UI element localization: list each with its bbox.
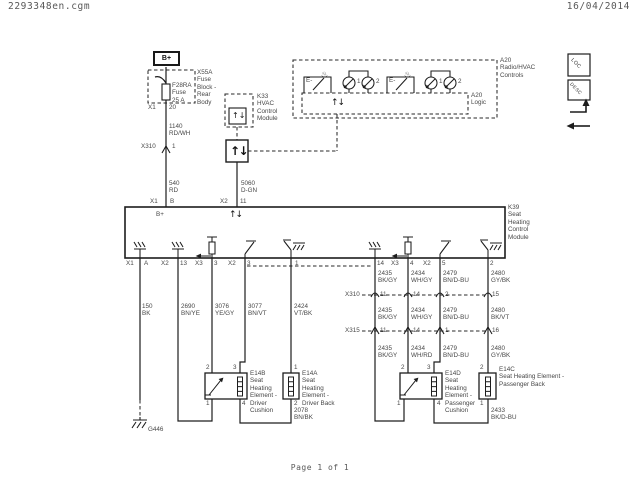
sensor-feed-resistor-symbol [397,237,413,258]
e14b-label: E14B Seat Heating Element - Driver Cushi… [250,370,277,415]
a20-logic-label: A20 Logic [471,92,486,107]
pin-label: 1 [206,400,210,407]
wire-label: 2480 GY/BK [491,345,510,360]
connector-label: X310 [345,291,360,298]
pin-label: 14 [413,291,420,298]
pin-label: 15 [492,291,499,298]
serial-data-icon: ↑↓ [331,99,344,108]
ground-label: G446 [148,426,163,433]
thermistor-symbol [205,380,221,395]
fuse-symbol [162,84,170,100]
pin-label: X1 [126,260,134,267]
pin-label: A [144,260,148,267]
switch-to-ground-symbol [480,240,502,258]
connector-label: X310 [141,143,156,150]
module-bplus-label: B+ [156,211,164,218]
wire-2690 [178,258,212,421]
pin-label: 1 [294,364,298,371]
pin-label: 2 [401,364,405,371]
serial-data-icon: ↑↓ [232,112,245,120]
pin-label: 3 [214,260,218,267]
led-legs [349,89,450,93]
pin-label: 3 [233,364,237,371]
module-internal-symbols [134,237,502,258]
pin-label: 1 [397,400,401,407]
wire-label: 150 BK [142,303,153,318]
ground-symbol [172,242,184,258]
wire-label: 2435 BK/GY [378,307,397,322]
serial-data-icon: ↑↓ [229,211,242,220]
ground-symbol [134,242,146,258]
wire-label: 2078 BN/BK [294,407,313,422]
pin-label: 2 [445,291,449,298]
k39-label: K39 Seat Heating Control Module [508,204,530,241]
ground-symbol [369,242,381,258]
k39-module-box [125,207,505,258]
pin-label: X2 [228,260,236,267]
pin-label: X3 [195,260,203,267]
fuse-terminal-hook [155,77,166,83]
diagram-linework [0,0,640,480]
pin-label: 3 [247,260,251,267]
k33-label: K33 HVAC Control Module [257,93,278,123]
pin-label: 1 [172,143,176,150]
pin-label: X2 [161,260,169,267]
e14a-label: E14A Seat Heating Element - Driver Back [302,370,335,407]
led-number: 1 [439,78,443,85]
switch-to-ground-symbol [283,240,305,258]
heated-seat-icon: ♨ [404,71,411,79]
pin-label: 20 [169,104,176,111]
pin-label: 16 [492,327,499,334]
pin-label: 2 [490,260,494,267]
wire-label: 2434 WH/GY [411,270,432,285]
pin-label: X2 [220,198,228,205]
wire-label: 2479 BN/D-BU [443,307,469,322]
pin-label: 1 [480,400,484,407]
battery-positive-box: B+ [153,51,180,66]
page-number: Page 1 of 1 [0,464,640,473]
fuse-label: F28RA Fuse 25 A [172,82,192,104]
wire-label: 2435 BK/GY [378,345,397,360]
pin-label: 1 [445,327,449,334]
switch-blade [313,78,324,90]
pin-label: 14 [413,327,420,334]
battery-positive-label: B+ [162,55,171,62]
wire-label: 1140 RD/WH [169,123,190,138]
e14d-label: E14D Seat Heating Element - Passenger Cu… [445,370,475,415]
wire-label: 3077 BN/VT [248,303,267,318]
pin-label: 11 [380,291,387,298]
serial-data-node-icon: ↑↓ [230,145,247,157]
wiring-diagram-page: 2293348en.cgm 16/04/2014 Page 1 of 1 B+ … [0,0,640,480]
element-strip-symbol [486,377,491,396]
wire-label: 2434 WH/RD [411,345,432,360]
pin-label: 4 [410,260,414,267]
pin-label: 1 [295,260,299,267]
led-number: 2 [458,78,462,85]
pin-label: 4 [437,400,441,407]
pin-label: 14 [377,260,384,267]
wire-label: 2433 BK/D-BU [491,407,517,422]
pin-label: X1 [148,104,156,111]
connector-label: X315 [345,327,360,334]
switch-e-label: E- [389,77,395,84]
pin-label: X2 [423,260,431,267]
wire-label: 2435 BK/GY [378,270,397,285]
wire-3077 [240,258,245,373]
switch-e-label: E- [306,77,312,84]
pin-label: 11 [380,327,387,334]
pin-label: 5 [442,260,446,267]
element-strip-symbol [432,377,437,396]
wire-label: 3076 YE/GY [215,303,234,318]
element-strip-symbol [238,377,243,396]
pin-label: 2 [206,364,210,371]
switch-blade [396,78,407,90]
pin-label: 11 [240,198,247,205]
switch-symbol [440,241,451,258]
led-top-rails [349,71,450,77]
element-strip-symbol [289,377,294,396]
wire-label: 2690 BN/YE [181,303,200,318]
pin-label: B [170,198,174,205]
wire-2479 [434,258,440,373]
wire-label: 2434 WH/GY [411,307,432,322]
pin-label: 2 [480,364,484,371]
a20-logic-dashed-box [302,93,468,114]
a20-dashed-box [293,60,497,118]
wire-label: 540 RD [169,180,180,195]
e14c-label: E14C Seat Heating Element - Passenger Ba… [499,366,564,388]
pin-label: 13 [180,260,187,267]
g446-ground-symbol [132,417,147,428]
thermistor-symbol [400,380,416,395]
pin-label: 4 [242,400,246,407]
led-number: 2 [376,78,380,85]
route-arrows-icon[interactable] [567,99,591,130]
wire-label: 2479 BN/D-BU [443,345,469,360]
switch-symbol [245,241,256,258]
sensor-feed-resistor-symbol [201,237,217,258]
led-number: 1 [357,78,361,85]
wire-label: 2480 BK/VT [491,307,509,322]
a20-label: A20 Radio/HVAC Controls [500,57,535,79]
wire-label: 2424 VT/BK [294,303,312,318]
fuse-block-label: X55A Fuse Block - Rear Body [197,69,216,106]
file-name: 2293348en.cgm [8,2,90,12]
dashed-linework [140,60,497,417]
pin-label: X1 [150,198,158,205]
wire-label: 2480 GY/BK [491,270,510,285]
heated-seat-icon: ♨ [321,71,328,79]
pin-label: 3 [427,364,431,371]
date-stamp: 16/04/2014 [567,2,630,12]
wire-label: 5060 D-GN [241,180,257,195]
wire-label: 2479 BN/D-BU [443,270,469,285]
pin-label: X3 [391,260,399,267]
